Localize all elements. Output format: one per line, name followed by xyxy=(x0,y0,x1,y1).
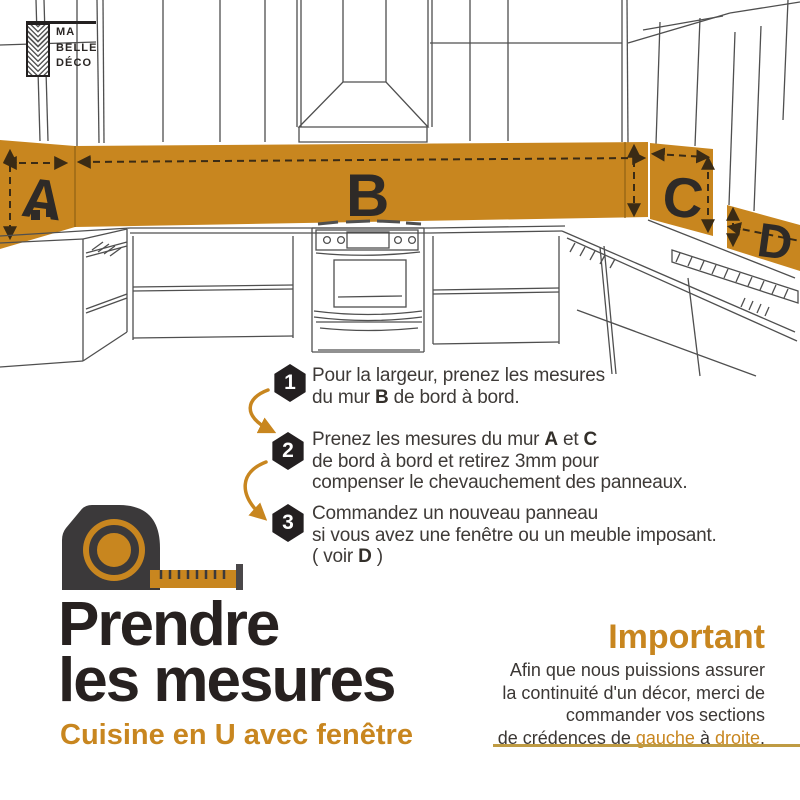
page-subtitle: Cuisine en U avec fenêtre xyxy=(60,719,413,752)
logo-line: BELLE xyxy=(56,41,98,57)
page-title: Prendre les mesures xyxy=(58,597,394,709)
text-segment: ) xyxy=(372,546,383,567)
important-note: Important Afin que nous puissions assure… xyxy=(430,618,765,749)
label-a: A xyxy=(18,165,66,232)
text-segment: de bord à bord. xyxy=(389,387,520,408)
text-segment: ( voir xyxy=(312,546,358,567)
text-segment: Afin que nous puissions assurer xyxy=(510,660,765,680)
base-cabinets-left xyxy=(0,228,430,367)
text-segment: B xyxy=(375,387,389,408)
text-segment: la continuité d'un décor, merci de xyxy=(502,683,765,703)
text-segment: A xyxy=(544,429,558,450)
gold-divider-line xyxy=(493,744,800,747)
step-text-2: Prenez les mesures du mur A et C de bord… xyxy=(312,429,687,494)
step-number-2: 2 xyxy=(282,439,294,463)
range-hood xyxy=(299,82,428,127)
logo-line: MA xyxy=(56,25,98,41)
label-b: B xyxy=(346,162,389,229)
text-segment: D xyxy=(358,546,372,567)
text-segment: Prenez les mesures du mur xyxy=(312,429,544,450)
step-text-3: Commandez un nouveau panneau si vous ave… xyxy=(312,503,717,568)
kitchen-sketch: A B C D xyxy=(0,0,800,378)
text-segment: Pour la largeur, prenez les mesures xyxy=(312,365,605,386)
logo-pattern-icon xyxy=(26,23,50,77)
tape-end-hook xyxy=(236,564,243,590)
important-heading: Important xyxy=(430,618,765,656)
arrow-1-to-2 xyxy=(250,390,270,430)
step-number-1: 1 xyxy=(284,371,296,395)
text-segment: et xyxy=(558,429,584,450)
step-text-1: Pour la largeur, prenez les mesures du m… xyxy=(312,365,605,408)
text-segment: commander vos sections xyxy=(566,705,765,725)
step-number-3: 3 xyxy=(282,511,294,535)
oven-window xyxy=(334,260,406,307)
herringbone-right xyxy=(38,25,48,75)
text-segment: du mur xyxy=(312,387,375,408)
title-line-1: Prendre xyxy=(58,597,394,653)
text-segment: compenser le chevauchement des panneaux. xyxy=(312,472,687,493)
stove xyxy=(312,221,424,352)
brand-logo: MA BELLE DÉCO xyxy=(56,25,98,72)
label-d: D xyxy=(754,214,796,271)
logo-line: DÉCO xyxy=(56,56,98,72)
infographic-canvas: A B C D xyxy=(0,0,800,800)
herringbone-left xyxy=(28,25,38,75)
title-line-2: les mesures xyxy=(58,653,394,709)
text-segment: si vous avez une fenêtre ou un meuble im… xyxy=(312,525,717,546)
tape-measure-icon xyxy=(55,498,255,598)
label-c: C xyxy=(660,164,707,231)
text-segment: C xyxy=(584,429,598,450)
text-segment: de bord à bord et retirez 3mm pour xyxy=(312,451,599,472)
text-segment: Commandez un nouveau panneau xyxy=(312,503,598,524)
